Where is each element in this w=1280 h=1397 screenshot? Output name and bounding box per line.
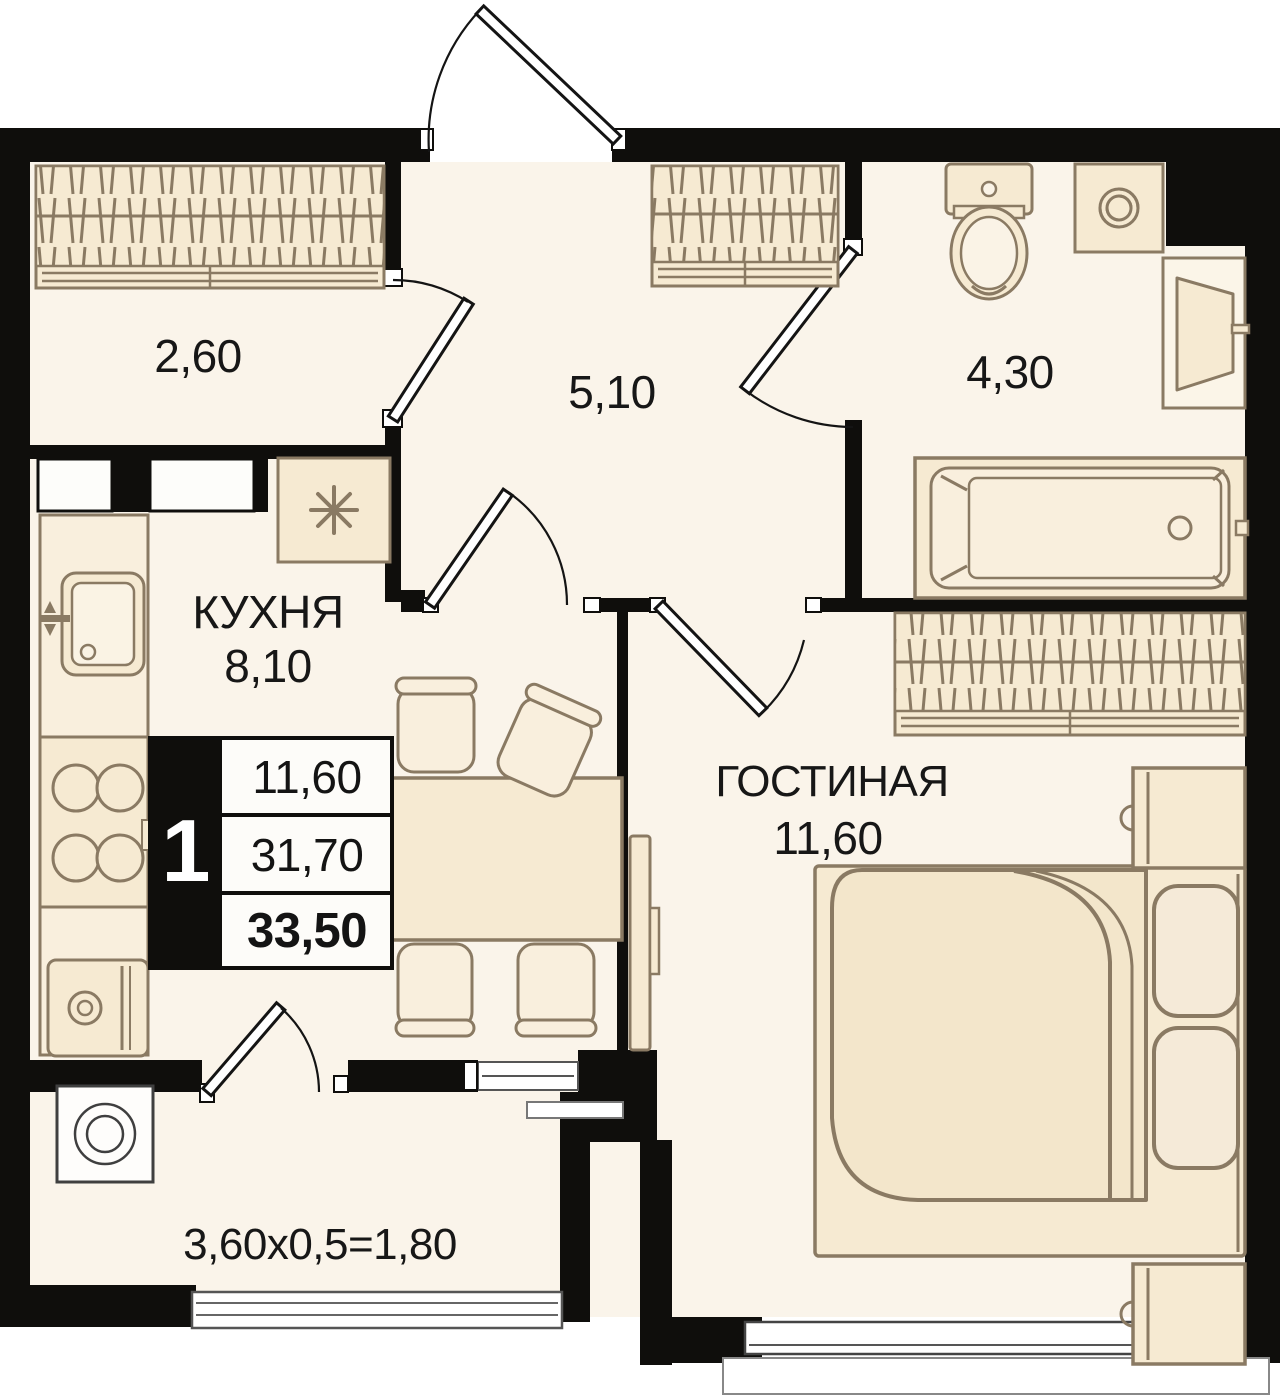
ventilation-shaft xyxy=(278,458,390,562)
wardrobe-living-room xyxy=(895,613,1245,735)
chair xyxy=(396,678,476,772)
nightstand-top xyxy=(1121,768,1245,868)
balcony-washing-machine xyxy=(57,1086,153,1182)
balcony-bottom-glazing xyxy=(192,1292,562,1328)
kitchen-fridge xyxy=(48,960,148,1056)
pillow xyxy=(1154,1028,1238,1168)
label-loggia-area: 2,60 xyxy=(154,329,242,383)
entrance-door xyxy=(429,6,621,152)
info-area-without-summer: 31,70 xyxy=(251,828,364,882)
chair xyxy=(516,944,596,1036)
label-balcony-calc: 3,60x0,5=1,80 xyxy=(183,1220,457,1270)
label-living-area: 11,60 xyxy=(773,811,882,865)
info-rooms-count: 1 xyxy=(162,800,211,902)
info-total-area: 33,50 xyxy=(247,903,367,959)
wardrobe-hallway xyxy=(652,166,838,286)
info-living-area: 11,60 xyxy=(252,750,361,804)
label-living-name: ГОСТИНАЯ xyxy=(715,757,948,807)
dining-table xyxy=(390,778,622,940)
bathroom-sink xyxy=(1163,258,1249,408)
wardrobe-loggia xyxy=(36,166,384,288)
label-hallway-area: 5,10 xyxy=(568,365,656,419)
chair xyxy=(396,944,474,1036)
pillow xyxy=(1154,886,1238,1016)
kitchen-loggia-window xyxy=(38,459,112,511)
bathtub xyxy=(915,458,1248,598)
kitchen-loggia-window-2 xyxy=(150,459,254,511)
nightstand-bottom xyxy=(1121,1264,1245,1364)
bed xyxy=(815,866,1245,1256)
kitchen-sink xyxy=(62,573,144,675)
label-kitchen-area: 8,10 xyxy=(224,639,312,693)
washing-machine xyxy=(1075,164,1163,252)
toilet xyxy=(946,164,1032,299)
apartment-floorplan: 2,60 5,10 4,30 КУХНЯ 8,10 ГОСТИНАЯ 11,60… xyxy=(0,0,1280,1397)
floorplan-drawing xyxy=(0,0,1280,1397)
label-kitchen-name: КУХНЯ xyxy=(192,585,343,639)
label-bathroom-area: 4,30 xyxy=(966,345,1054,399)
asterisk-icon xyxy=(311,487,357,533)
